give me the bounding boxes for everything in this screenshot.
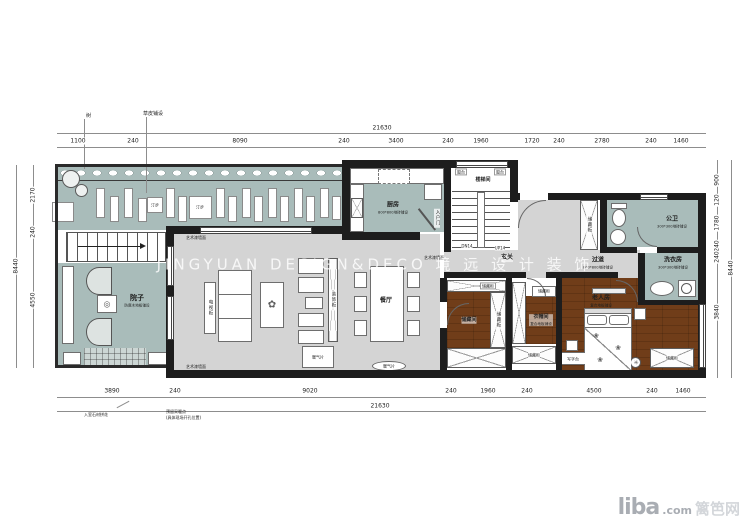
armchair [298,313,324,327]
dim-value: 21630 [369,403,390,410]
wall-finish-note: 艺术漆墙面 [186,364,206,370]
stepping-stone [254,196,263,222]
dim-value: 2170 [30,186,37,203]
armchair [298,330,324,344]
stairs-arrow-icon [140,243,146,249]
dim-line [57,133,706,134]
dim-value: 240 [644,138,657,145]
stair-window-tag: 窗台 [455,168,467,175]
side-table [305,297,323,309]
bathroom-window [640,194,668,200]
stepping-stone [242,188,251,218]
stepping-stone [138,198,147,222]
toilet-bowl [612,209,626,227]
storage-cabinet [447,348,506,368]
dim-line [57,147,706,148]
entry-door-label: 入户门 [434,209,440,228]
dim-value: 1460 [674,388,691,395]
entry-stone-annotation: 入室石材拼花 [84,412,108,418]
nightstand [634,308,646,320]
wall-laundry-bottom [640,300,706,305]
dim-value: 1780 [714,214,721,231]
stool [566,340,578,351]
dim-value: 1720 [523,138,540,145]
storage-label: 储藏间 [461,317,476,324]
stepping-stone [320,188,329,218]
leader-line [146,117,147,193]
dim-value: 8440 [13,257,20,274]
radiator-label: 暖气片 [383,363,395,368]
cabinet-tag: 储藏柜 [586,216,592,235]
tree-icon [75,184,88,197]
laundry-basin [650,281,674,296]
stepping-stone [332,196,341,220]
dim-value: 240 [552,138,565,145]
stepping-stone [96,188,105,218]
dim-value: 1460 [672,138,689,145]
dim-value: 3840 [714,303,721,320]
wall-bathroom-bottom-b [657,247,706,253]
cabinet-tag: 储藏柜 [528,352,540,357]
desk-label: 写字台 [567,356,579,361]
dim-value: 21630 [371,125,392,132]
stepping-stone [166,188,175,218]
dim-value: 1960 [472,138,489,145]
dining-chair [407,320,420,336]
stair-up-label: UP14 [495,245,505,250]
wall-laundry-left [638,253,645,305]
liba-logo: liba .com 篱笆网 [618,495,740,520]
planter-box [62,266,74,344]
watermark: JINGYUAN DESIGN&DECO 境 远 设 计 装 饰 [157,254,594,275]
wall-bathroom-bottom-a [600,247,637,253]
laundry-label: 洗衣房 300*300地砖铺设 [656,257,689,270]
deco-cabinet-label: 装饰柜 [330,291,336,310]
pillow [587,315,607,325]
courtyard-label: 院子 防腐木地板铺设 [123,294,151,308]
quilt-flower-icon: ❀ [615,344,621,352]
dim-value: 3400 [387,138,404,145]
stepping-stone [178,196,187,222]
arc-chair [86,318,112,346]
cabinet-tag: 储藏柜 [538,288,550,293]
kitchen-label: 厨房 800*800地砖铺设 [376,202,409,215]
tree-annotation: 树 [86,112,91,119]
quilt-flower-icon: ❀ [597,356,603,364]
bed-quilt [585,327,631,370]
walkway-label: 汀步 [151,202,159,207]
sofa-seam [218,294,252,295]
stepping-stone [228,196,237,222]
dim-value: 240 [520,388,533,395]
wall-bottom [166,370,706,378]
logo-tld-text: .com [662,504,692,517]
garden-wall-left [55,164,58,368]
dim-value: 9020 [301,388,318,395]
table-lamp-icon: ◎ [104,300,111,309]
dim-value: 240 [645,388,658,395]
dim-value: 2780 [593,138,610,145]
bathroom-label: 公卫 300*300地砖铺设 [655,216,688,229]
stepping-stone [294,188,303,218]
radiator-label: 暖气片 [312,354,324,359]
dim-value: 8090 [231,138,248,145]
stepping-stone [124,188,133,218]
garden-wall-bottom [55,365,170,368]
stepping-stone [268,188,277,218]
dim-value: 240 [168,388,181,395]
dim-value: 240 [126,138,139,145]
sofa-seam [218,318,252,319]
garden-wall-top [55,164,347,167]
dim-value: 240 [337,138,350,145]
dim-value: 240 [30,225,37,238]
storage-cabinet [447,280,506,292]
cabinet-tag: 储藏柜 [666,355,678,360]
living-top-window [200,227,312,234]
wall-rightwing-top-a [510,193,520,200]
sofa [218,270,252,342]
garden-stairs [66,232,166,262]
stairwell-label: 楼梯间 [475,177,490,184]
dim-line [57,411,706,412]
leader-line [117,401,130,408]
dim-value: 4500 [585,388,602,395]
reserve-annotation-2: (具体现场开孔位置) [166,415,201,421]
stair-rail [477,192,485,248]
grass-annotation: 草皮铺设 [143,110,163,117]
kitchen-sink [351,198,363,218]
stepping-stone [306,196,315,222]
wall-bathroom-left [600,200,607,247]
stepping-stone [280,196,289,222]
cloakroom-label: 衣帽间 复合地板铺设 [529,314,553,326]
cooktop [378,169,410,184]
elder-bay-window [699,304,706,368]
stepping-stone [216,188,225,218]
dim-value: 240 [714,250,721,263]
dining-chair [354,320,367,336]
dim-value: 240 [441,138,454,145]
stair-window-tag: 窗台 [494,168,506,175]
dim-value: 3890 [103,388,120,395]
stepping-stone [110,196,119,222]
dim-line [57,397,706,398]
washer-drum-icon [681,283,692,294]
wall-kitchen-bottom [342,232,420,240]
dim-value: 8440 [728,259,735,276]
arc-chair [86,267,112,295]
pillow [609,315,629,325]
dim-value: 4550 [30,291,37,308]
cabinet-tag: 储藏柜 [480,282,496,289]
bed-headboard [584,308,632,314]
dim-value: 120 [714,193,721,206]
cabinet-tag: 储藏柜 [495,311,501,330]
dim-value: 1100 [69,138,86,145]
wall-finish-note: 艺术漆墙面 [186,235,206,241]
wall-storage-west-a [440,278,447,302]
logo-liba-text: liba [618,495,660,520]
dim-value: 240 [444,388,457,395]
plant-icon: ✿ [268,300,276,311]
armchair [298,277,324,293]
courtyard-deck [84,348,146,366]
fridge [424,184,442,200]
cloak-cabinet [512,282,526,344]
wall-storage-cloak [506,278,512,370]
dining-chair [407,296,420,312]
stairs-direction-line [78,246,140,247]
dim-value: 900 [714,173,721,186]
wall-rightwing-top-b [548,193,706,200]
stair-down-label: DN14 [461,243,472,248]
walkway-hedge-border [57,167,345,181]
tv-cabinet-label: 电视柜 [207,299,213,318]
living-window-b [167,296,174,340]
elder-label: 老人房 复合地板铺设 [589,295,613,308]
floor-plan: 汀步 汀步 ◎ 院子 防腐木地板铺设 电视柜 ✿ 装饰柜 暖气片 暖气片 艺术漆… [0,0,750,530]
logo-cn-text: 篱笆网 [695,498,740,519]
stairwell-window [456,161,508,168]
fan-blades-icon: ✳ [633,360,638,367]
wall-kitchen-stair [444,160,451,252]
bath-sink [610,229,626,245]
planter-box [63,352,81,365]
wall-cloak-elder [556,278,562,370]
dining-chair [354,296,367,312]
quilt-flower-icon: ❀ [593,332,599,340]
dim-value: 1960 [479,388,496,395]
planter-box [148,352,167,365]
walkway-label: 汀步 [196,204,204,209]
dining-label: 餐厅 [380,297,392,305]
wall-storage-west-b [440,328,447,370]
